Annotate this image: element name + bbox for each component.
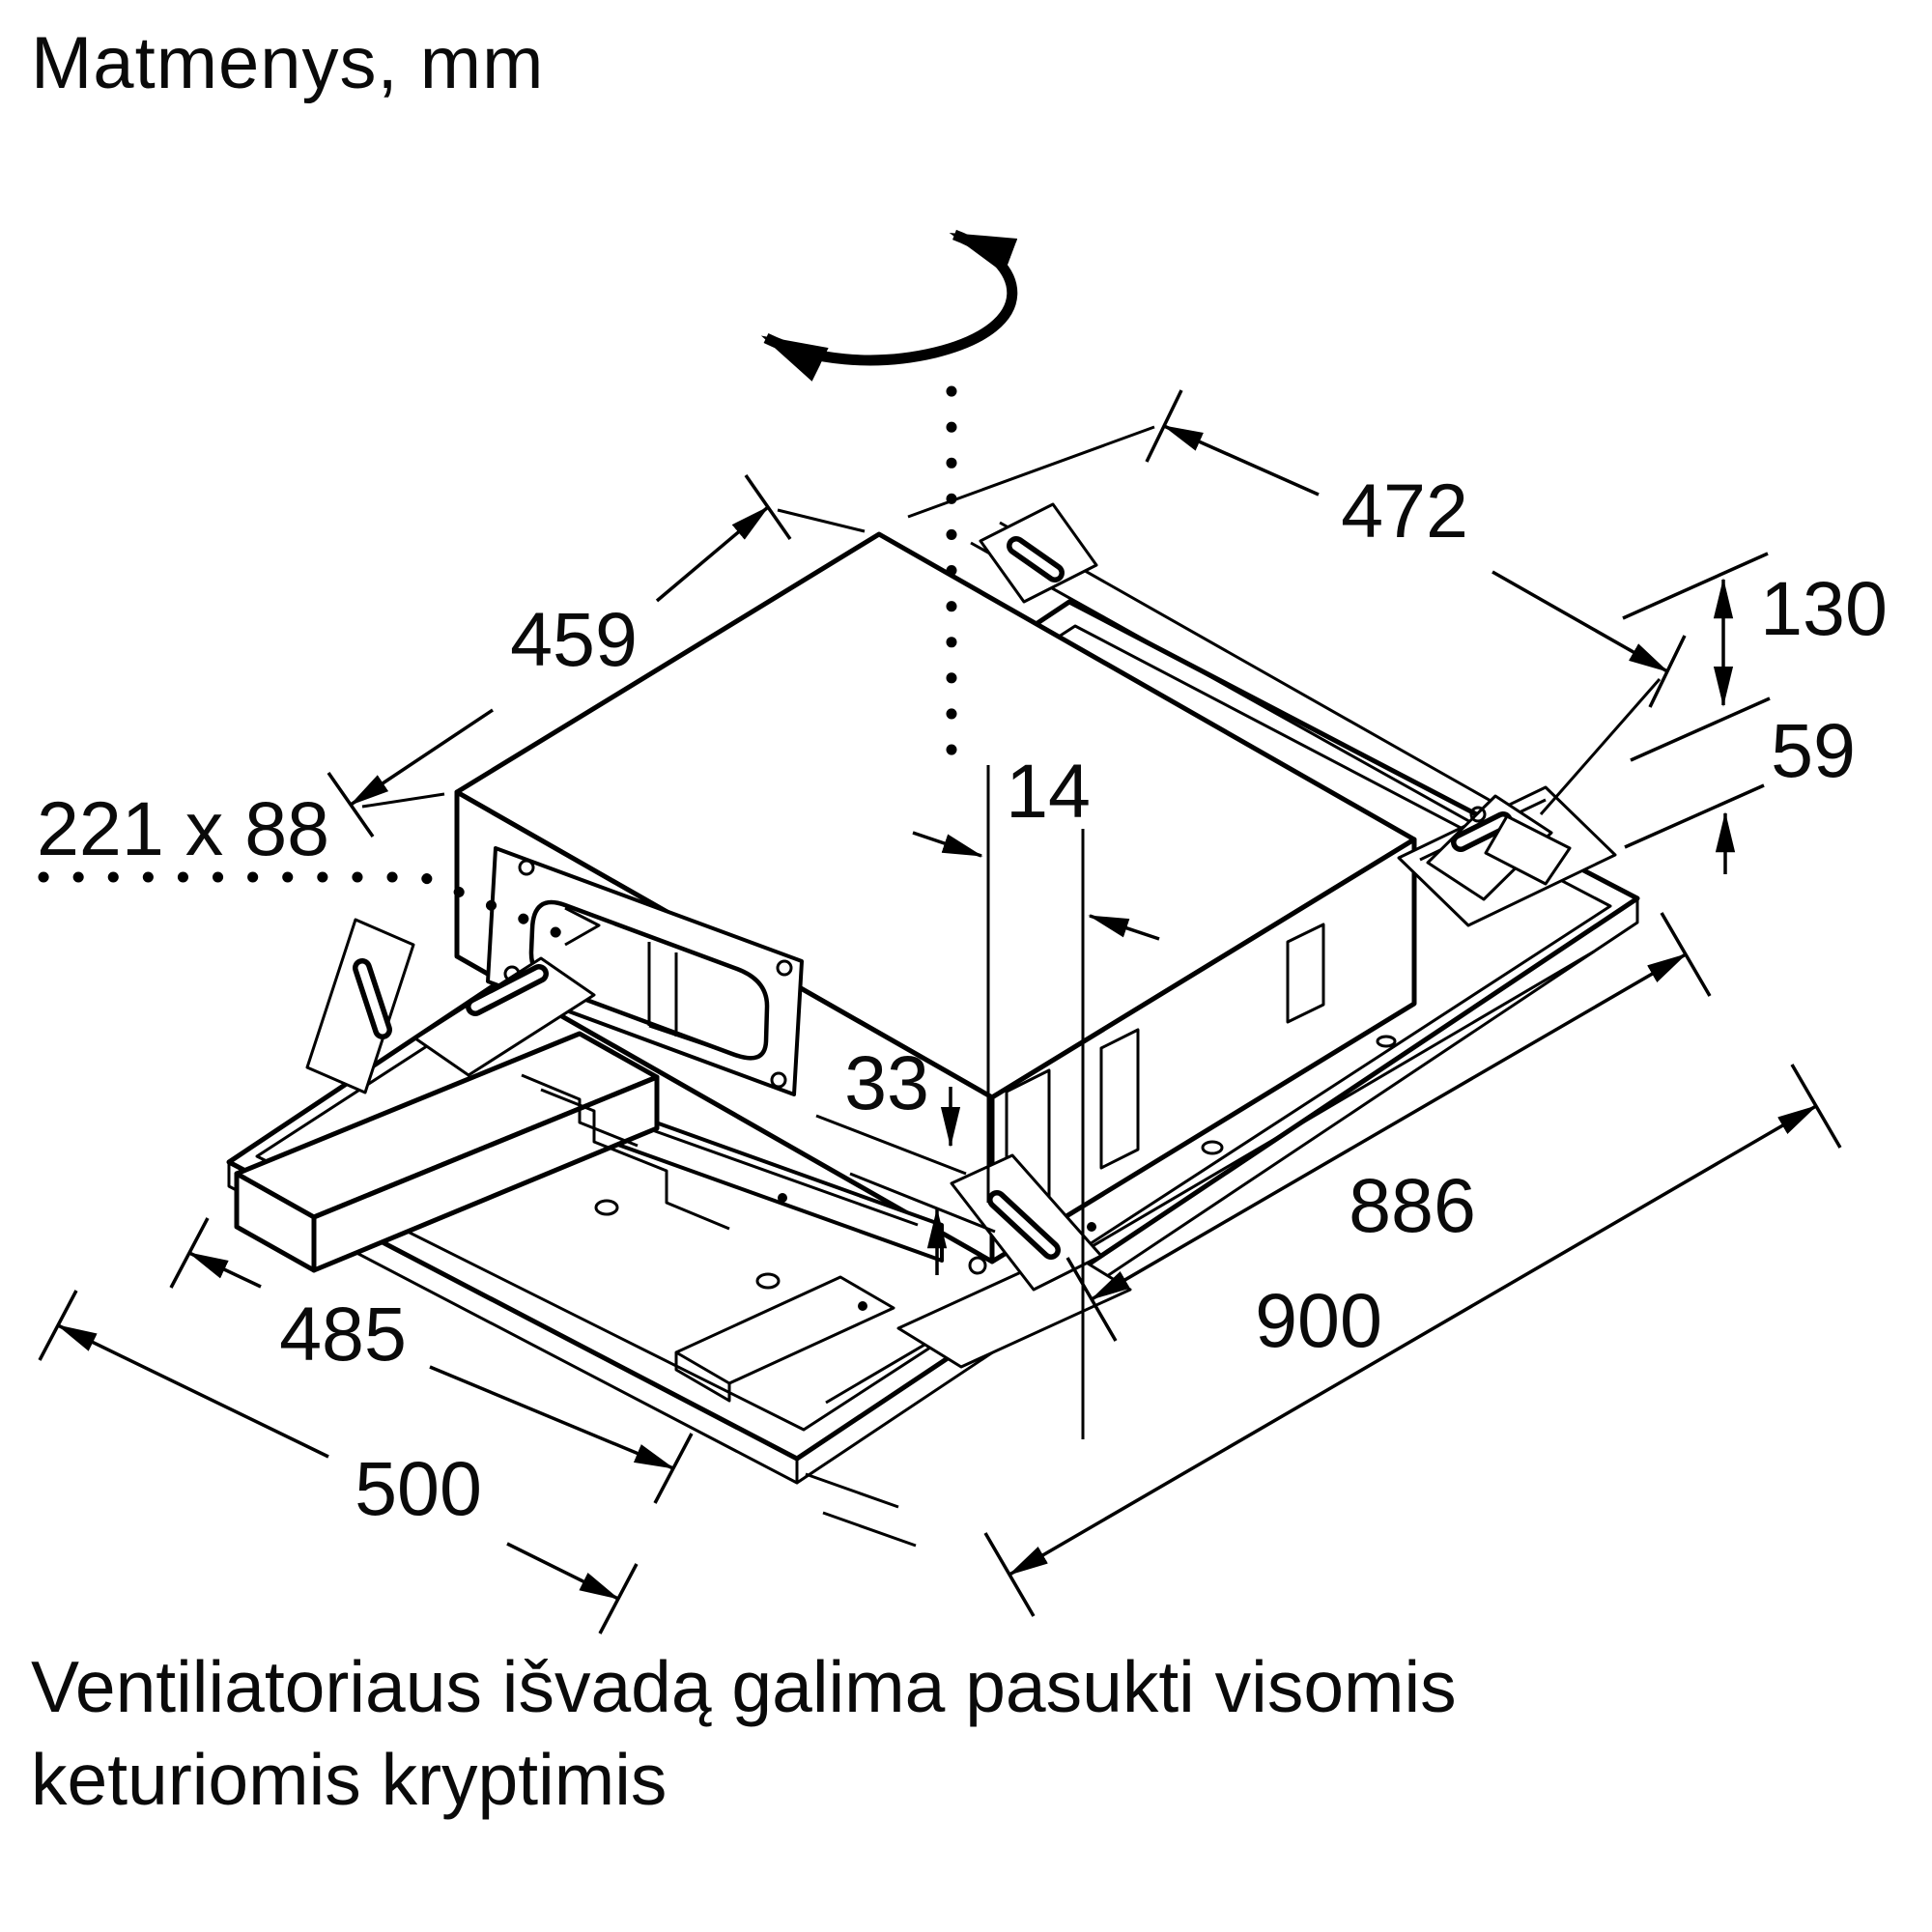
- dim-label-500: 500: [355, 1445, 482, 1531]
- dim-label-130: 130: [1760, 565, 1888, 651]
- caption-line-1: Ventiliatoriaus išvadą galima pasukti vi…: [31, 1646, 1457, 1727]
- rotation-arrow-icon: [766, 235, 1012, 360]
- dim-label-472: 472: [1341, 468, 1468, 554]
- dim-label-900: 900: [1255, 1277, 1382, 1363]
- dimension-221x88: 221 x 88: [37, 785, 329, 871]
- dim-label-221x88: 221 x 88: [37, 785, 329, 871]
- dim-label-33: 33: [844, 1039, 929, 1125]
- dimension-59: 59: [1625, 707, 1856, 874]
- dim-label-59: 59: [1771, 707, 1856, 793]
- dim-label-14: 14: [1006, 748, 1091, 834]
- caption-line-2: keturiomis kryptimis: [31, 1739, 667, 1820]
- dimension-diagram-page: { "title": "Matmenys, mm", "caption": { …: [0, 0, 1932, 1932]
- dim-label-485: 485: [279, 1291, 407, 1377]
- dim-label-886: 886: [1349, 1162, 1476, 1248]
- mounting-bracket-top: [980, 504, 1096, 602]
- dim-label-459: 459: [510, 596, 638, 682]
- caption-text: Ventiliatoriaus išvadą galima pasukti vi…: [31, 1640, 1457, 1826]
